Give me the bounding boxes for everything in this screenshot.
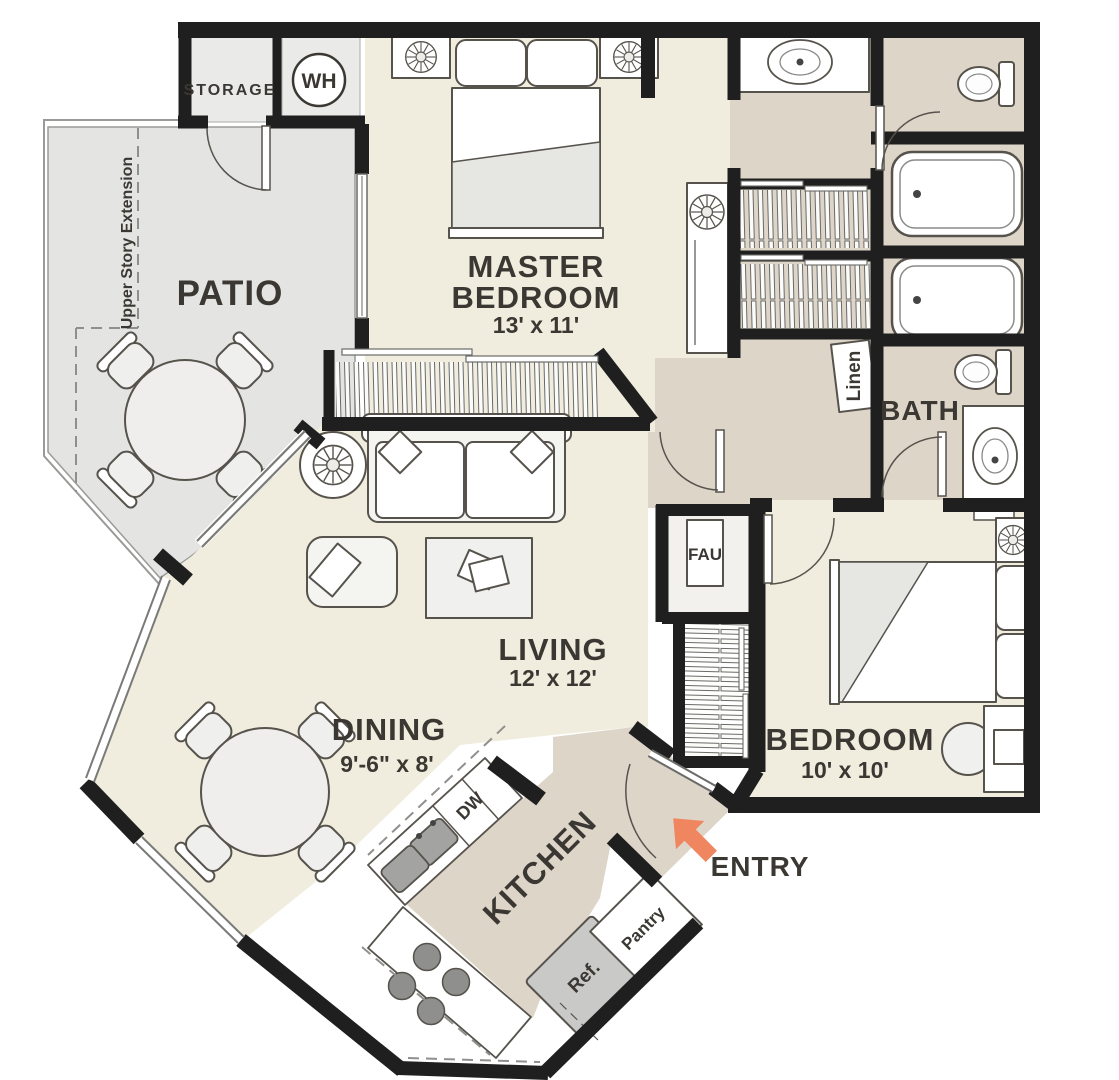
sliding-door [743, 694, 748, 758]
master-bedroom-label-line1: MASTER [468, 249, 605, 284]
lamp-icon [690, 195, 724, 229]
plant-icon [313, 445, 352, 484]
lamp-icon [999, 526, 1028, 555]
stove-burner [389, 973, 416, 1000]
water-heater-label: WH [302, 70, 337, 93]
linen-label: Linen [844, 351, 865, 402]
sliding-door [342, 349, 472, 355]
master-closet-hangers [336, 362, 598, 418]
hall-closet-b-hangers [737, 264, 870, 328]
sliding-door [805, 260, 867, 265]
bathtub-icon [892, 152, 1022, 236]
bedroom-label: BEDROOM [766, 722, 935, 757]
entry-label: ENTRY [711, 851, 810, 882]
sink-icon [973, 428, 1017, 484]
dining-label: DINING [332, 712, 447, 747]
floorplan-canvas: STORAGE WH PATIO Upper Story Extension M… [0, 0, 1119, 1080]
sliding-door [741, 181, 803, 186]
lamp-icon [406, 42, 437, 73]
door-leaf [938, 432, 946, 496]
upper-cabinet-dashed [408, 1058, 540, 1062]
door-leaf [262, 126, 270, 190]
master-vanity [737, 32, 869, 92]
bed-footboard [449, 228, 603, 238]
bed-footboard [830, 560, 839, 704]
patio-label: PATIO [177, 274, 284, 313]
sliding-door [466, 356, 598, 362]
hall-closet-a-hangers [737, 190, 870, 248]
storage-label: STORAGE [184, 82, 277, 99]
pillow [456, 40, 526, 86]
bedroom-dims: 10' x 10' [801, 757, 889, 783]
floorplan-page: STORAGE WH PATIO Upper Story Extension M… [0, 0, 1119, 1080]
bath-label: BATH [880, 395, 960, 426]
pillow [527, 40, 597, 86]
door-leaf [716, 430, 724, 492]
sliding-door [805, 186, 867, 191]
door-leaf [764, 515, 772, 583]
living-dims: 12' x 12' [509, 665, 597, 691]
patio-table [125, 360, 245, 480]
master-bedroom-label-line2: BEDROOM [452, 280, 621, 315]
dining-table [201, 728, 329, 856]
stove-burner [443, 969, 470, 996]
bathtub-icon [892, 258, 1022, 342]
fau-label: FAU [688, 545, 722, 564]
lamp-icon [614, 42, 645, 73]
desk-monitor [994, 730, 1024, 764]
sliding-door [741, 255, 803, 260]
storage-floor [190, 36, 278, 122]
stove-burner [414, 944, 441, 971]
upper-story-label: Upper Story Extension [119, 157, 136, 329]
sliding-door [739, 628, 744, 690]
master-bedroom-dims: 13' x 11' [493, 312, 579, 338]
living-label: LIVING [498, 632, 607, 667]
dining-dims: 9'-6" x 8' [340, 751, 433, 777]
dining-table-set [173, 700, 356, 883]
stove-burner [418, 998, 445, 1025]
